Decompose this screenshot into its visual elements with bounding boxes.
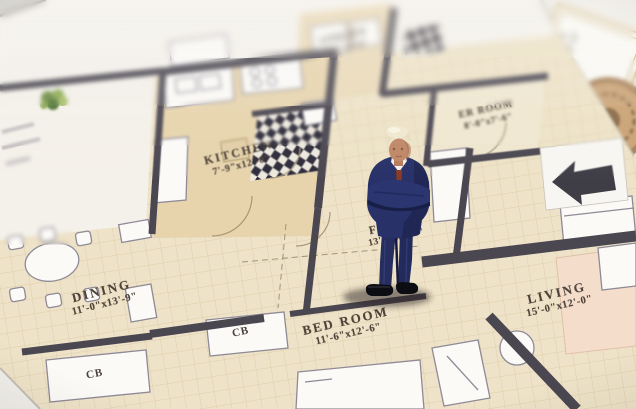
photo-scene: Toilet 5'-8"x7'-5" bbox=[0, 0, 636, 409]
figure-body bbox=[366, 126, 430, 296]
businessman-figurine bbox=[0, 0, 636, 409]
